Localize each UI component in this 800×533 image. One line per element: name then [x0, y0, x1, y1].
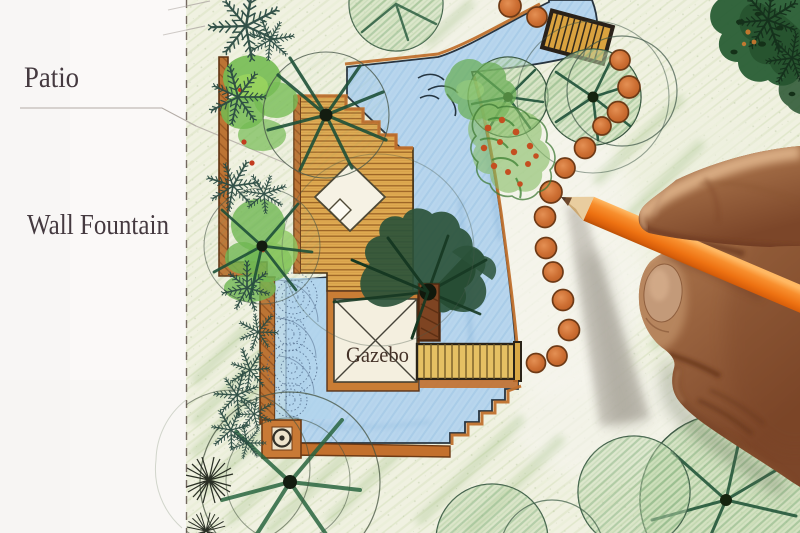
svg-text:Wall Fountain: Wall Fountain — [27, 209, 169, 241]
svg-text:Patio: Patio — [24, 61, 79, 94]
